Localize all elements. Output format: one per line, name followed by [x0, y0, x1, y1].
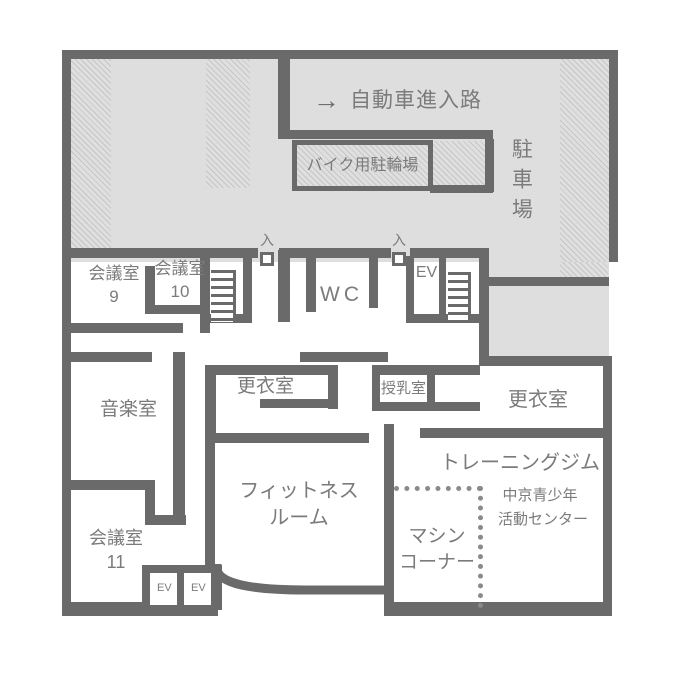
wall: [479, 356, 612, 366]
hatch-cell: [433, 141, 485, 185]
bike-parking-label: バイク用駐輪場: [307, 155, 419, 177]
machine-corner-dotted-boundary: [394, 486, 482, 491]
meeting9-number: 9: [80, 286, 148, 309]
wall: [369, 256, 378, 308]
wall: [145, 305, 205, 314]
room-label-nursing: 授乳室: [381, 379, 426, 399]
wall: [62, 323, 183, 333]
machine-corner-line1: マシン: [392, 524, 482, 550]
wall: [205, 365, 216, 443]
stairs-icon: [211, 270, 236, 322]
wall: [384, 602, 612, 616]
wall: [205, 433, 369, 443]
wall: [420, 428, 604, 438]
room-label-fitness: フィットネス ルーム: [213, 478, 385, 532]
fitness-name-line2: ルーム: [213, 505, 385, 532]
room-label-training-gym: トレーニングジム: [440, 450, 600, 477]
room-label-elevator-upper: EV: [415, 262, 438, 284]
room-label-wc: WC: [320, 281, 363, 309]
wall: [427, 365, 435, 410]
fitness-name-line1: フィットネス: [213, 478, 385, 505]
room-label-music: 音楽室: [100, 397, 157, 423]
wall: [62, 50, 618, 59]
room-label-machine-corner: マシン コーナー: [392, 524, 482, 575]
wall: [145, 515, 186, 525]
wall: [278, 58, 290, 138]
room-label-elevator-lower-2: EV: [191, 582, 204, 596]
car-entry-arrow-icon: →: [313, 82, 340, 118]
wall: [278, 250, 290, 322]
floor-plan: バイク用駐輪場 → 自動車進入路 駐車場 入 入 会議室 9 会議室 10 WC…: [0, 0, 680, 680]
bike-parking-box: バイク用駐輪場: [292, 140, 433, 191]
meeting10-number: 10: [151, 281, 209, 304]
machine-corner-line2: コーナー: [392, 550, 482, 576]
wall: [488, 277, 609, 286]
driveway-label: 自動車進入路: [350, 87, 482, 115]
wall: [300, 352, 388, 362]
wall: [479, 248, 489, 366]
wall: [173, 352, 185, 524]
hatch-strip-middle: [206, 59, 250, 188]
hatch-strip-east-lower: [560, 262, 608, 277]
room-label-locker-east: 更衣室: [508, 387, 568, 414]
wall: [62, 248, 258, 258]
room-label-meeting10: 会議室 10: [151, 258, 209, 304]
wall: [410, 248, 488, 258]
wall: [306, 256, 316, 312]
elevator-lower-2: EV: [184, 573, 211, 605]
elevator-lower-1: EV: [150, 573, 177, 605]
wall: [372, 402, 480, 411]
parking-label: 駐車場: [506, 138, 534, 228]
entrance-label-east: 入: [392, 231, 406, 250]
entrance-door-icon: [392, 252, 406, 266]
wall: [430, 185, 493, 193]
wall: [260, 399, 338, 408]
wall: [603, 366, 612, 616]
stairs-icon: [448, 272, 471, 320]
wall: [609, 50, 618, 262]
meeting9-name: 会議室: [80, 263, 148, 286]
entrance-label-west: 入: [260, 231, 274, 250]
hatch-strip-east: [560, 59, 609, 262]
entrance-door-icon: [260, 252, 274, 266]
wall: [406, 256, 414, 320]
room-label-meeting9: 会議室 9: [80, 263, 148, 309]
wall: [278, 130, 493, 139]
wall: [439, 256, 446, 320]
room-label-elevator-lower-1: EV: [157, 582, 170, 596]
gym-subtitle-line1: 中京青少年: [480, 486, 600, 506]
meeting11-name: 会議室: [70, 526, 162, 550]
wall: [70, 352, 152, 362]
room-label-locker-center: 更衣室: [237, 374, 294, 400]
wall: [384, 424, 394, 616]
meeting10-name: 会議室: [151, 258, 209, 281]
hatch-strip-west: [71, 59, 111, 248]
wall: [372, 365, 480, 375]
wall: [62, 480, 153, 490]
gym-subtitle-line2: 活動センター: [480, 510, 606, 530]
